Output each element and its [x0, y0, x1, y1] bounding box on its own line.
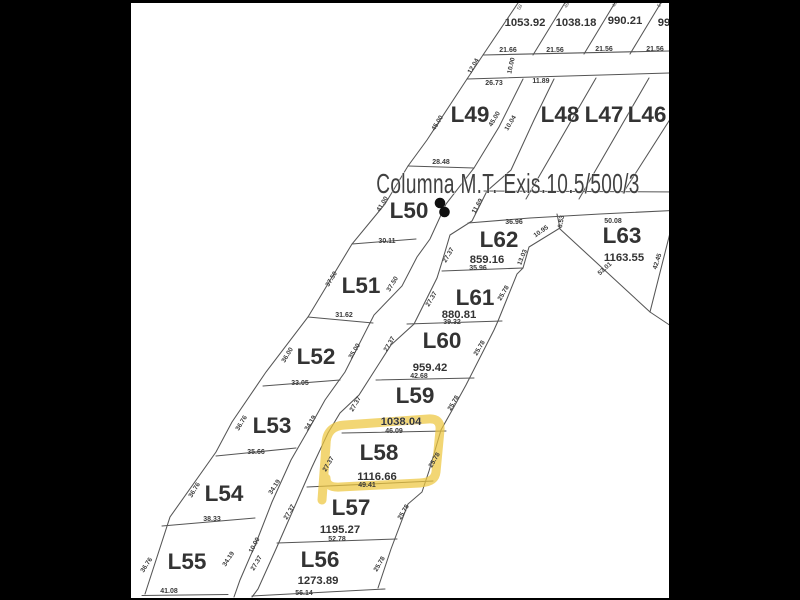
- svg-text:52.78: 52.78: [328, 536, 346, 543]
- svg-text:99: 99: [658, 17, 671, 29]
- svg-text:35.96: 35.96: [469, 265, 487, 272]
- svg-text:38.33: 38.33: [203, 516, 221, 523]
- svg-text:28.48: 28.48: [432, 159, 450, 166]
- svg-text:L59: L59: [396, 383, 435, 408]
- svg-text:1273.89: 1273.89: [298, 575, 339, 587]
- svg-text:L48: L48: [541, 102, 580, 127]
- svg-text:31.62: 31.62: [335, 312, 353, 319]
- svg-text:46.09: 46.09: [385, 428, 403, 435]
- svg-text:Columna M.T. Exis.10.5/500/3: Columna M.T. Exis.10.5/500/3: [376, 168, 639, 200]
- svg-text:39.32: 39.32: [443, 319, 461, 326]
- svg-text:L50: L50: [390, 198, 429, 223]
- svg-text:1038.18: 1038.18: [556, 17, 597, 29]
- svg-text:L54: L54: [205, 481, 244, 506]
- svg-text:11.89: 11.89: [532, 78, 549, 85]
- svg-text:L46: L46: [628, 102, 667, 127]
- svg-text:L60: L60: [423, 328, 462, 353]
- svg-text:L55: L55: [168, 549, 207, 574]
- svg-text:990.21: 990.21: [608, 15, 643, 27]
- svg-text:50.08: 50.08: [604, 218, 622, 225]
- svg-text:56.14: 56.14: [295, 590, 313, 597]
- svg-text:26.73: 26.73: [485, 80, 503, 87]
- svg-text:L63: L63: [603, 223, 642, 248]
- svg-text:L58: L58: [360, 440, 399, 465]
- svg-text:30.11: 30.11: [378, 238, 395, 245]
- svg-text:21.56: 21.56: [546, 47, 564, 54]
- svg-text:49.41: 49.41: [358, 482, 376, 489]
- svg-text:36.96: 36.96: [505, 219, 523, 226]
- svg-text:33.05: 33.05: [291, 380, 309, 387]
- svg-text:42.68: 42.68: [410, 373, 428, 380]
- svg-text:L53: L53: [253, 413, 292, 438]
- svg-text:21.56: 21.56: [595, 46, 613, 53]
- svg-text:L57: L57: [332, 495, 371, 520]
- svg-text:L49: L49: [451, 102, 490, 127]
- svg-text:21.56: 21.56: [646, 46, 664, 53]
- svg-text:L61: L61: [456, 285, 495, 310]
- svg-text:35.66: 35.66: [247, 449, 265, 456]
- svg-text:41.08: 41.08: [160, 588, 178, 595]
- svg-text:1053.92: 1053.92: [505, 17, 546, 29]
- svg-text:L56: L56: [301, 547, 340, 572]
- svg-text:1038.04: 1038.04: [381, 416, 423, 428]
- svg-text:L51: L51: [342, 273, 381, 298]
- svg-text:21.66: 21.66: [499, 47, 517, 54]
- svg-text:L62: L62: [480, 227, 519, 252]
- svg-text:1195.27: 1195.27: [320, 524, 360, 536]
- svg-text:L52: L52: [297, 344, 336, 369]
- svg-text:L47: L47: [585, 102, 624, 127]
